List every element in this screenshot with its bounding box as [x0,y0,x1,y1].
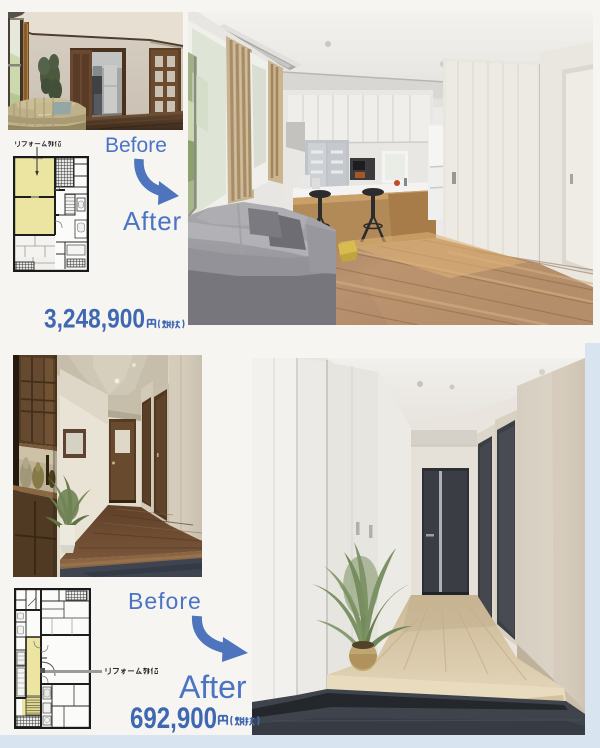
svg-text:692,900: 692,900 [130,702,217,734]
svg-text:3,248,900: 3,248,900 [44,304,145,334]
